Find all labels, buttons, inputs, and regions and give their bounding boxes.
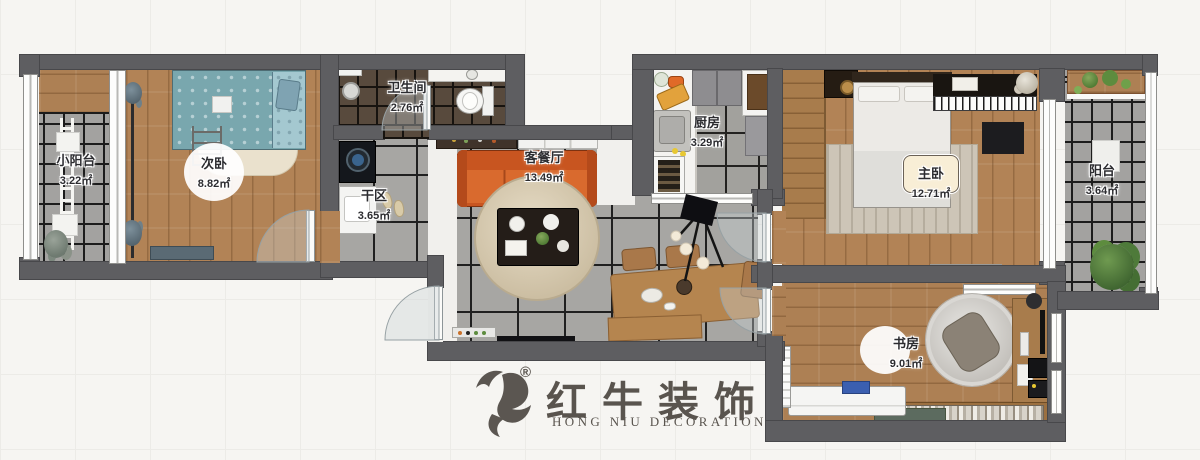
- wall: [768, 69, 782, 198]
- bench: [150, 246, 214, 260]
- room-label-secondary-bedroom: 次卧8.82㎡: [198, 156, 230, 191]
- wardrobe: [782, 69, 826, 219]
- printer: [1028, 380, 1048, 398]
- wall: [633, 69, 653, 195]
- wall: [633, 55, 1143, 69]
- storage-box: [56, 132, 80, 152]
- dinner-cup: [664, 302, 677, 311]
- master-door-threshold: [772, 211, 786, 264]
- kitchen-sliding-door: [651, 193, 753, 204]
- folded-blanket: [842, 381, 870, 394]
- kitchen-plate: [654, 72, 669, 87]
- room-label-kitchen: 厨房3.29㎡: [691, 115, 723, 150]
- shower-head: [342, 82, 360, 100]
- potted-plant: [1082, 72, 1098, 88]
- wall: [1040, 69, 1064, 101]
- room-label-bathroom: 卫生间2.76㎡: [387, 80, 426, 115]
- wall: [428, 256, 443, 287]
- registered-mark: ®: [520, 364, 531, 381]
- wall: [1058, 292, 1158, 309]
- bed-tray: [212, 96, 232, 113]
- wall: [612, 126, 635, 139]
- sofa-armrest: [457, 150, 467, 207]
- window: [1051, 313, 1062, 363]
- study-door: [762, 288, 771, 334]
- fridge-shelves: [658, 160, 680, 192]
- keyboard: [1020, 332, 1029, 356]
- room-label-balcony: 阳台3.64㎡: [1086, 163, 1118, 198]
- curtain-plant: [124, 82, 142, 104]
- bedroom-plant: [1016, 72, 1038, 94]
- wall: [334, 126, 384, 139]
- master-bedroom-door: [762, 213, 771, 262]
- room-label-master-bedroom: 主卧12.71㎡: [912, 166, 951, 201]
- table-plant: [536, 232, 549, 245]
- sheet-music: [952, 77, 978, 91]
- entrance-door: [434, 286, 443, 340]
- piano-keys: [933, 96, 1037, 111]
- refrigerator: [692, 70, 742, 106]
- coffee-table-book: [505, 240, 527, 256]
- floor-mat-tv: [982, 122, 1024, 154]
- floor-plan: 小阳台3.22㎡ 次卧8.82㎡ 卫生间2.76㎡ 干区3.65㎡ 客餐厅13.…: [0, 0, 1200, 460]
- pillow: [275, 79, 301, 112]
- window: [1145, 72, 1157, 294]
- printer-led: [1032, 384, 1036, 388]
- kitchen-hall-floor: [597, 139, 635, 205]
- dining-bench: [608, 314, 703, 341]
- window: [23, 74, 38, 260]
- planter-sill: [1067, 94, 1145, 99]
- monitor: [1040, 310, 1045, 354]
- wall: [758, 260, 772, 289]
- bedroom-door: [306, 210, 315, 262]
- planter-bench: [1067, 70, 1145, 94]
- pillow: [858, 86, 900, 102]
- printer: [1028, 358, 1048, 378]
- table-dishes: [509, 216, 525, 232]
- brand-name-en: HONG NIU DECORATION: [552, 414, 767, 430]
- desk-lamp: [1026, 293, 1042, 309]
- bedroom-door-threshold: [320, 211, 340, 263]
- room-label-living-dining: 客餐厅13.49㎡: [524, 150, 563, 185]
- window: [1051, 370, 1062, 414]
- wall: [20, 262, 332, 279]
- wall: [321, 262, 435, 277]
- toilet-seat-ring: [462, 92, 478, 110]
- sofa-armrest: [587, 150, 597, 207]
- brand-logo: ® 红牛装饰 HONG NIU DECORATION: [462, 360, 842, 455]
- window: [1043, 99, 1056, 269]
- dinnerware: [640, 287, 663, 304]
- window: [109, 70, 126, 264]
- room-label-dry-area: 干区3.65㎡: [358, 188, 390, 223]
- balcony-plant: [44, 230, 68, 258]
- sink-basin: [466, 69, 478, 80]
- wall: [428, 342, 784, 360]
- wall: [20, 55, 39, 76]
- wall: [758, 190, 772, 214]
- lemons: [672, 148, 678, 154]
- washer-glass: [352, 154, 364, 166]
- wall: [752, 266, 1065, 282]
- room-label-study: 书房9.01㎡: [890, 336, 922, 371]
- dining-chair: [665, 244, 701, 269]
- wall: [20, 55, 524, 69]
- media-devices: [458, 331, 462, 335]
- room-label-small-balcony: 小阳台3.22㎡: [56, 153, 95, 188]
- dinner-bowl: [676, 278, 693, 295]
- small-balcony-wood-floor: [39, 69, 110, 113]
- study-door-threshold: [772, 286, 786, 336]
- kitchen-sink-basin: [659, 116, 685, 144]
- dining-chair: [621, 247, 657, 272]
- large-plant: [1090, 244, 1134, 290]
- wall: [428, 126, 614, 139]
